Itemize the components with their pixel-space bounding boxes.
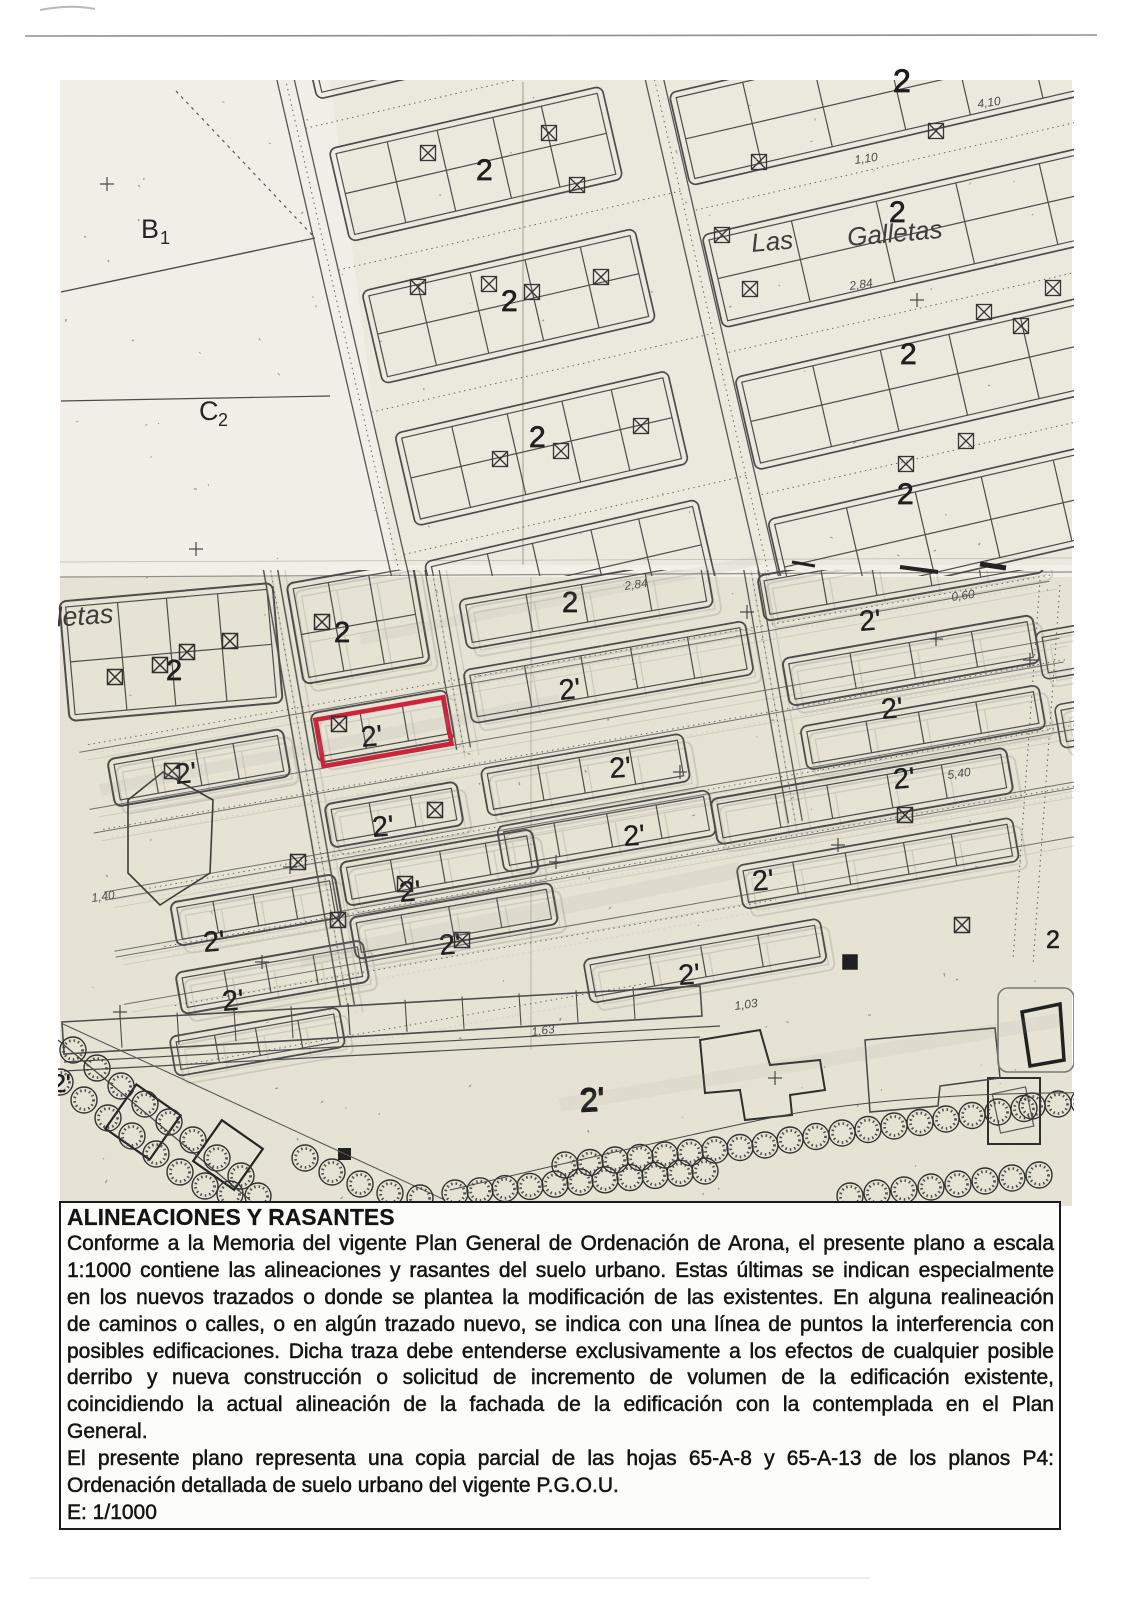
svg-text:2: 2: [893, 63, 911, 99]
svg-text:3,4: 3,4: [1088, 87, 1107, 103]
